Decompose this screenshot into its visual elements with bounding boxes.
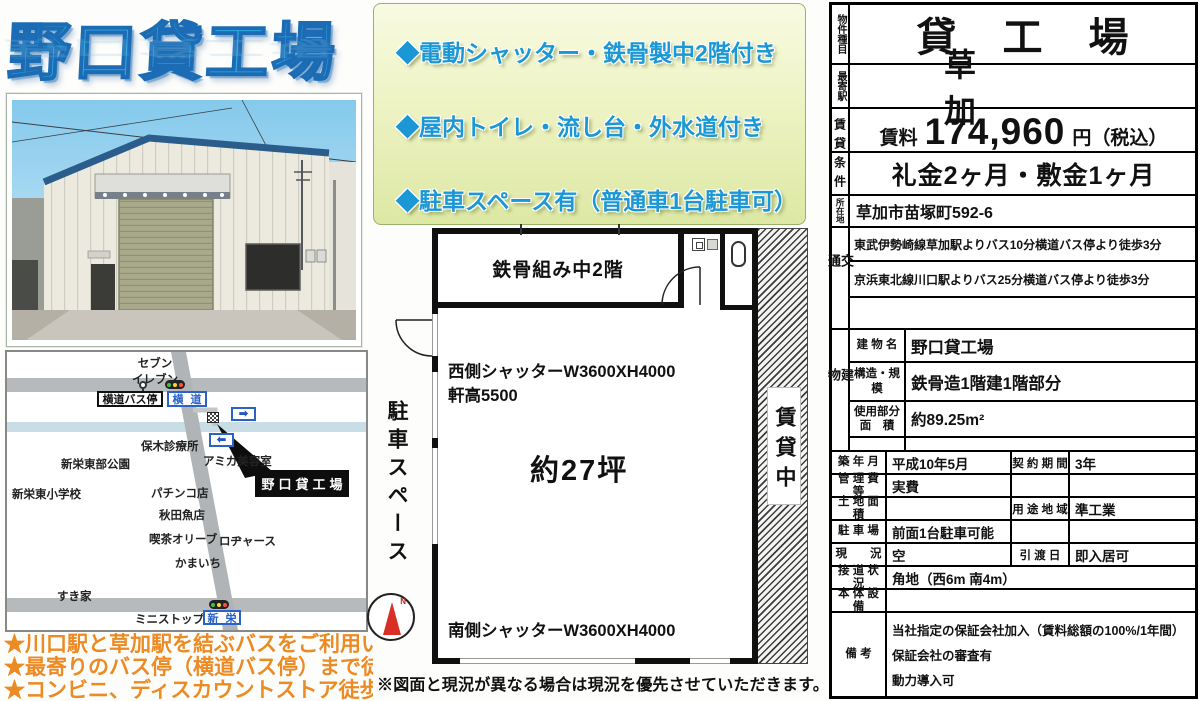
feature-box: ◆電動シャッター・鉄骨製中2階付き ◆屋内トイレ・流し台・外水道付き ◆駐車スペ… bbox=[373, 3, 806, 225]
north-needle-icon bbox=[383, 602, 401, 635]
wall-tick bbox=[618, 224, 620, 235]
map-label-school: 新栄東小学校 bbox=[12, 486, 81, 502]
row-remarks: 備 考 当社指定の保証会社加入（賃料総額の100%/1年間） 保証会社の審査有 … bbox=[832, 613, 1195, 696]
factory-photo-illustration bbox=[12, 99, 356, 341]
row-building: 建物 建 物 名 野口貸工場 構造・規模 鉄骨造1階建1階部分 使用部分 面 積… bbox=[832, 330, 1195, 452]
row-land-area: 土 地 面 積 用 途 地 域 準工業 bbox=[832, 498, 1195, 521]
page-title-reflection: 野口貸工場 bbox=[3, 35, 368, 64]
contract-label: 契 約 期 間 bbox=[1010, 452, 1070, 473]
zoning-value: 準工業 bbox=[1070, 498, 1195, 519]
address-value: 草加市苗塚町592-6 bbox=[850, 199, 993, 223]
remark-line: 保証会社の審査有 bbox=[892, 644, 1195, 669]
row-management-fee: 管 理 費 等 実費 bbox=[832, 475, 1195, 498]
entry-door-opening bbox=[432, 314, 438, 356]
empty-label bbox=[1010, 521, 1070, 542]
map-label-cafe: 喫茶オリーブ bbox=[149, 531, 217, 547]
used-area-label-line2: 面 積 bbox=[860, 419, 895, 433]
eave-height-label: 軒高5500 bbox=[448, 382, 518, 406]
map-label-kamaichi: かまいち bbox=[175, 555, 221, 571]
station-label-cell: 最寄駅 bbox=[832, 65, 850, 107]
row-road: 接 道 状 況 角地（西6m 南4m） bbox=[832, 567, 1195, 590]
map-label-ministop: ミニストップ bbox=[135, 611, 204, 627]
south-shutter-opening bbox=[690, 658, 730, 664]
deposit-value: 礼金2ヶ月・敷金1ヶ月 bbox=[892, 156, 1156, 192]
station-label: 最寄駅 bbox=[835, 71, 845, 101]
wall-tick bbox=[520, 224, 522, 235]
building-label-cell: 建物 bbox=[832, 330, 850, 450]
equipment-value bbox=[887, 590, 1195, 611]
feature-line: ◆屋内トイレ・流し台・外水道付き bbox=[396, 108, 805, 142]
zoning-label: 用 途 地 域 bbox=[1010, 498, 1070, 519]
handover-label: 引 渡 日 bbox=[1010, 544, 1070, 565]
row-rent: 賃料 174,960 円（税込） bbox=[832, 109, 1195, 153]
property-type-label-cell: 物件種目 bbox=[832, 5, 850, 63]
road-value: 角地（西6m 南4m） bbox=[887, 567, 1195, 588]
west-shutter-label: 西側シャッターW3600XH4000 bbox=[448, 358, 675, 382]
row-address: 所在地 草加市苗塚町592-6 bbox=[832, 196, 1195, 228]
compass-north-label: N bbox=[400, 597, 406, 606]
address-label-cell: 所在地 bbox=[832, 196, 850, 226]
map-label-amika: アミカ美容室 bbox=[203, 453, 272, 469]
structure-row: 構造・規模 鉄骨造1階建1階部分 bbox=[850, 363, 1195, 402]
map-label-clinic: 保木診療所 bbox=[141, 438, 199, 454]
building-name-label: 建 物 名 bbox=[850, 330, 906, 361]
building-empty-row bbox=[850, 438, 1195, 450]
floor-area-label: 約27坪 bbox=[530, 447, 628, 489]
feature-line: ◆駐車スペース有（普通車1台駐車可） bbox=[396, 182, 805, 216]
management-fee-label: 管 理 費 等 bbox=[832, 475, 887, 496]
map-label-sukiya: すき家 bbox=[57, 588, 92, 604]
access-map: セブン イレブン 横道バス停 横道 ➡ ⬅ 保木診療所 アミカ美容室 新栄東部公… bbox=[5, 350, 368, 632]
used-area-label-line1: 使用部分 bbox=[854, 405, 900, 419]
map-label-rogers: ロヂャース bbox=[219, 533, 276, 549]
map-property-callout: 野口貸工場 bbox=[255, 470, 349, 497]
property-spec-table: 物件種目 貸工場 最寄駅 草加 賃貸条件 賃料 174,960 円（税込） 礼金… bbox=[829, 2, 1198, 699]
used-area-value: 約89.25m² bbox=[906, 402, 1195, 436]
structure-value: 鉄骨造1階建1階部分 bbox=[906, 363, 1195, 400]
rented-status-label: 賃貸中 bbox=[769, 397, 799, 496]
access-label-cell: 交通 bbox=[832, 228, 850, 328]
remarks-label: 備 考 bbox=[832, 613, 887, 696]
status-label: 現 況 bbox=[832, 544, 887, 565]
map-label-park: 新栄東部公園 bbox=[61, 456, 130, 472]
map-label-line: セブン bbox=[125, 355, 185, 371]
property-marker-icon bbox=[207, 412, 219, 423]
empty-value bbox=[1070, 475, 1195, 496]
status-value: 空 bbox=[887, 544, 1010, 565]
access-line-empty bbox=[850, 298, 1195, 328]
remark-line: 動力導入可 bbox=[892, 669, 1195, 694]
building-name-value: 野口貸工場 bbox=[906, 330, 1195, 361]
built-label: 築 年 月 bbox=[832, 452, 887, 473]
used-area-row: 使用部分 面 積 約89.25m² bbox=[850, 402, 1195, 438]
map-label-pachinko: パチンコ店 bbox=[151, 485, 209, 501]
remark-line: 当社指定の保証会社加入（賃料総額の100%/1年間） bbox=[892, 619, 1195, 644]
structure-label: 構造・規模 bbox=[850, 363, 906, 400]
sink-icon bbox=[707, 239, 718, 250]
used-area-label: 使用部分 面 積 bbox=[850, 402, 906, 436]
west-shutter-opening bbox=[432, 372, 438, 438]
built-value: 平成10年5月 bbox=[887, 452, 1010, 473]
row-access: 交通 東武伊勢崎線草加駅よりバス10分横道バス停より徒歩3分 京浜東北線川口駅よ… bbox=[832, 228, 1195, 330]
traffic-light-icon bbox=[165, 380, 185, 389]
access-line: 東武伊勢崎線草加駅よりバス10分横道バス停より徒歩3分 bbox=[850, 228, 1195, 262]
row-deposit: 礼金2ヶ月・敷金1ヶ月 bbox=[832, 153, 1195, 196]
property-photo bbox=[6, 93, 362, 347]
traffic-light-icon bbox=[209, 600, 229, 609]
property-type-label: 物件種目 bbox=[835, 14, 845, 54]
contract-value: 3年 bbox=[1070, 452, 1195, 473]
note-line: ★川口駅と草加駅を結ぶバスをご利用いただけます bbox=[4, 633, 373, 656]
toilet-icon bbox=[731, 241, 746, 267]
equipment-label: 本 体 設 備 bbox=[832, 590, 887, 611]
rent-value: 174,960 bbox=[925, 111, 1066, 153]
empty-label bbox=[1010, 475, 1070, 496]
floor-plan: 鉄骨組み中2階 西側シャッターW3600XH4000 軒高5500 約27坪 南… bbox=[370, 225, 820, 701]
access-line: 京浜東北線川口駅よりバス25分横道バス停より徒歩3分 bbox=[850, 262, 1195, 298]
land-area-label: 土 地 面 積 bbox=[832, 498, 887, 519]
management-fee-value: 実費 bbox=[887, 475, 1010, 496]
plan-disclaimer: ※図面と現況が異なる場合は現況を優先させていただきます。 bbox=[377, 671, 829, 695]
row-built: 築 年 月 平成10年5月 契 約 期 間 3年 bbox=[832, 452, 1195, 475]
parking-value: 前面1台駐車可能 bbox=[887, 521, 1010, 542]
bus-stop-sign: 横道バス停 bbox=[97, 391, 163, 407]
south-shutter-opening bbox=[460, 658, 635, 664]
building-empty-label bbox=[850, 438, 906, 450]
shinei-road-sign: 新栄 bbox=[203, 610, 241, 625]
empty-value bbox=[1070, 521, 1195, 542]
compass-icon: N bbox=[367, 593, 415, 641]
address-label: 所在地 bbox=[836, 198, 845, 224]
arrow-left-icon: ⬅ bbox=[209, 433, 234, 447]
stove-icon bbox=[692, 238, 705, 251]
row-station: 最寄駅 草加 bbox=[832, 65, 1195, 109]
row-status: 現 況 空 引 渡 日 即入居可 bbox=[832, 544, 1195, 567]
row-equipment: 本 体 設 備 bbox=[832, 590, 1195, 613]
rent-unit: 円（税込） bbox=[1072, 123, 1167, 150]
handover-value: 即入居可 bbox=[1070, 544, 1195, 565]
rent-label: 賃料 bbox=[880, 123, 918, 150]
south-shutter-label: 南側シャッターW3600XH4000 bbox=[448, 617, 675, 641]
note-line: ★コンビニ、ディスカウントストア徒歩圏内！ bbox=[4, 679, 373, 701]
road-label: 接 道 状 況 bbox=[832, 567, 887, 588]
land-area-value bbox=[887, 498, 1010, 519]
yokomichi-road-sign: 横道 bbox=[167, 391, 207, 407]
note-line: ★最寄りのバス停（横道バス停）まで徒歩3分！ bbox=[4, 656, 373, 679]
map-label-fish-shop: 秋田魚店 bbox=[159, 507, 205, 523]
building-name-row: 建 物 名 野口貸工場 bbox=[850, 330, 1195, 363]
rented-status-box: 賃貸中 bbox=[767, 387, 801, 505]
mezzanine-label: 鉄骨組み中2階 bbox=[492, 255, 624, 282]
parking-space-label: 駐車スペース bbox=[381, 400, 411, 568]
highlight-notes: ★川口駅と草加駅を結ぶバスをご利用いただけます ★最寄りのバス停（横道バス停）ま… bbox=[4, 633, 373, 701]
mezzanine-room: 鉄骨組み中2階 bbox=[438, 234, 684, 308]
feature-line: ◆電動シャッター・鉄骨製中2階付き bbox=[396, 34, 805, 68]
building-empty-value bbox=[906, 438, 1195, 450]
row-parking: 駐 車 場 前面1台駐車可能 bbox=[832, 521, 1195, 544]
arrow-right-icon: ➡ bbox=[231, 407, 256, 421]
parking-label: 駐 車 場 bbox=[832, 521, 887, 542]
toilet-room bbox=[720, 234, 752, 310]
west-shutter-opening bbox=[432, 448, 438, 544]
